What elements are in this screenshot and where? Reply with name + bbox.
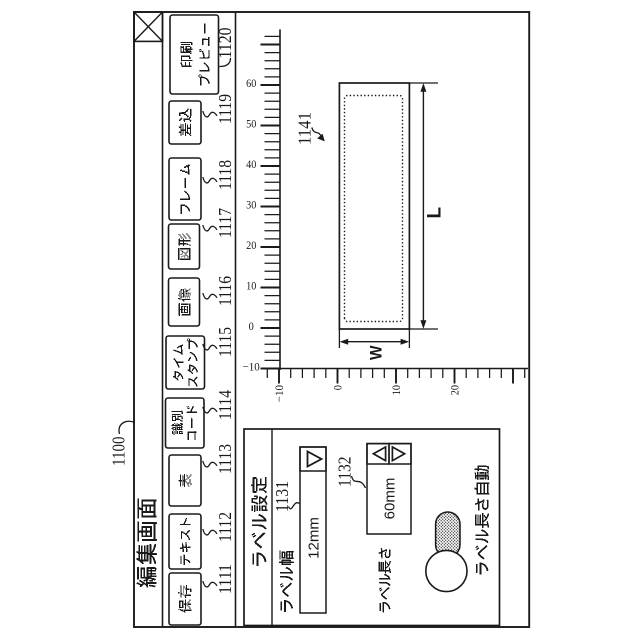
svg-text:1117: 1117 [215,208,235,238]
svg-text:20: 20 [246,238,256,252]
svg-text:60: 60 [246,76,256,90]
svg-text:1100: 1100 [109,437,129,467]
svg-text:1113: 1113 [215,444,235,474]
svg-text:10: 10 [389,385,403,395]
svg-text:1132: 1132 [335,457,355,488]
svg-text:W: W [367,345,386,360]
svg-text:1119: 1119 [215,94,235,124]
svg-text:20: 20 [448,385,462,395]
svg-text:0: 0 [249,319,254,333]
svg-text:50: 50 [246,117,256,131]
svg-text:L: L [424,207,445,219]
svg-text:1118: 1118 [215,160,235,190]
svg-text:30: 30 [246,198,256,212]
svg-text:1115: 1115 [215,327,235,357]
svg-text:−10: −10 [243,360,260,374]
svg-text:40: 40 [246,157,256,171]
svg-text:12mm: 12mm [306,517,323,559]
svg-text:1111: 1111 [215,564,235,594]
svg-text:−10: −10 [272,385,286,402]
svg-text:1112: 1112 [215,512,235,542]
svg-text:1116: 1116 [215,276,235,306]
svg-text:60mm: 60mm [382,478,399,520]
svg-text:0: 0 [331,385,345,390]
svg-text:10: 10 [246,279,256,293]
svg-text:1114: 1114 [215,390,235,420]
svg-text:1120: 1120 [215,28,235,59]
